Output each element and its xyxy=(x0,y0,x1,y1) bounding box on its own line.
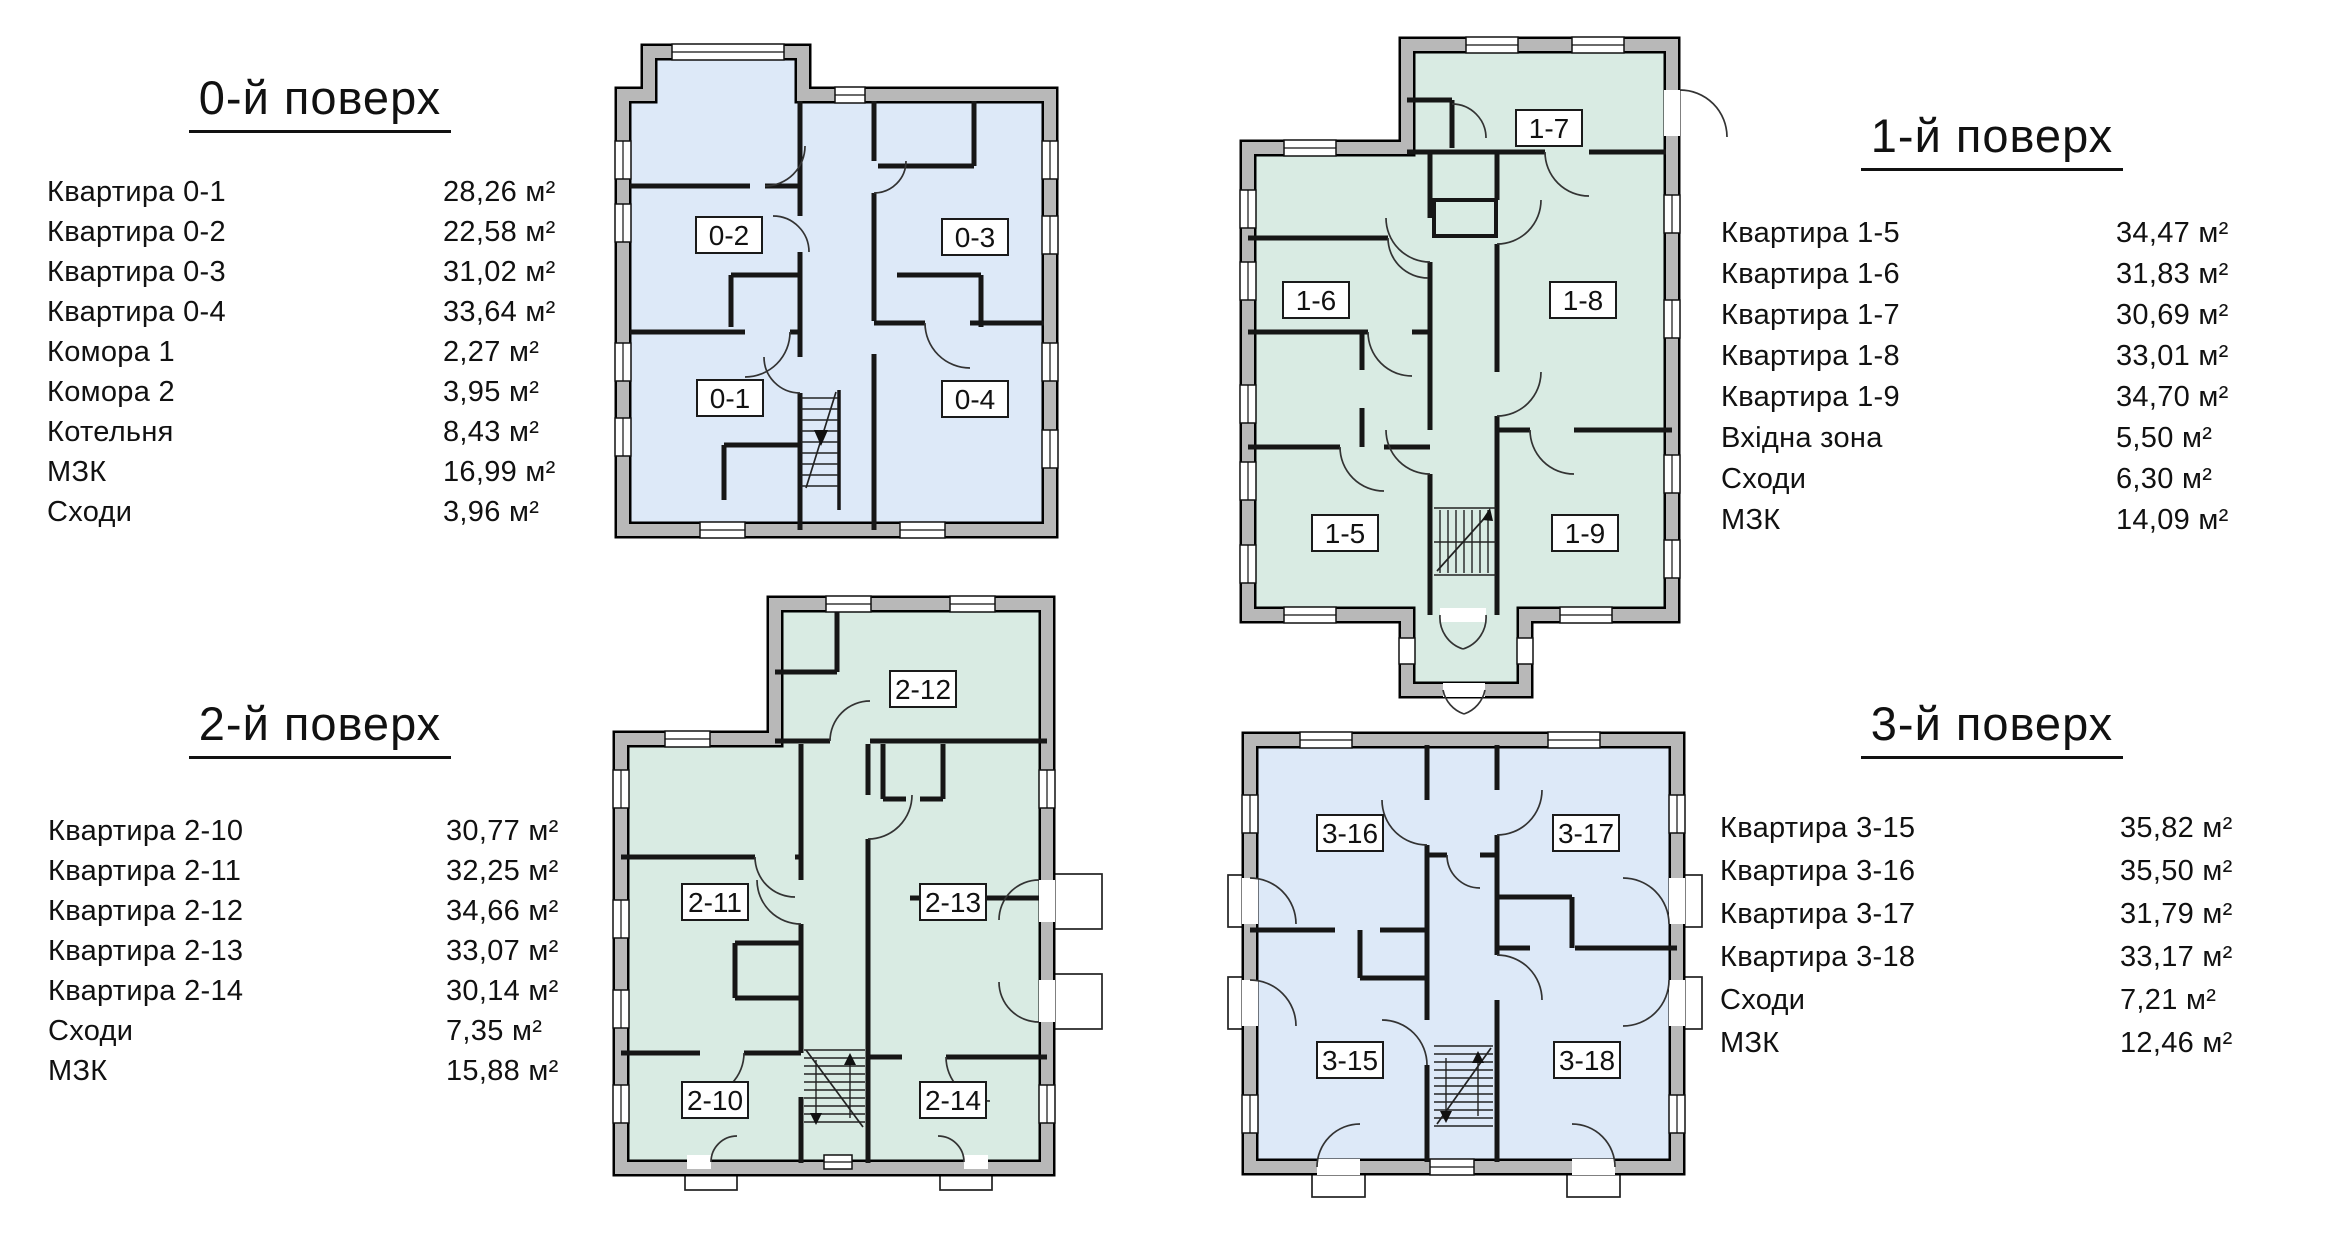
floor-plans-canvas: 0-2 0-3 0-1 0-4 xyxy=(0,0,2335,1254)
building-outline xyxy=(1250,740,1677,1167)
room-label-text: 3-17 xyxy=(1558,818,1614,849)
room-label-text: 3-18 xyxy=(1559,1045,1615,1076)
room-label-text: 2-10 xyxy=(687,1085,743,1116)
room-label-text: 1-5 xyxy=(1325,518,1365,549)
room-label-text: 0-1 xyxy=(710,383,750,414)
room-label-text: 1-8 xyxy=(1563,285,1603,316)
room-label-text: 3-16 xyxy=(1322,818,1378,849)
room-label-text: 2-13 xyxy=(925,887,981,918)
floor-plan-sheet: 0-й поверх Квартира 0-128,26 м² Квартира… xyxy=(0,0,2335,1254)
building-outline xyxy=(623,52,1050,530)
room-label-text: 2-12 xyxy=(895,674,951,705)
room-label-text: 3-15 xyxy=(1322,1045,1378,1076)
room-label-text: 0-3 xyxy=(955,222,995,253)
floor-0-plan: 0-2 0-3 0-1 0-4 xyxy=(615,44,1058,538)
room-label-text: 1-7 xyxy=(1529,113,1569,144)
room-label-text: 1-9 xyxy=(1565,518,1605,549)
floor-2-plan: 2-12 2-11 2-13 2-10 2-14 xyxy=(613,596,1102,1190)
floor-3-plan: 3-16 3-17 3-15 3-18 xyxy=(1228,732,1702,1197)
room-label-text: 0-4 xyxy=(955,384,995,415)
room-label-text: 2-14 xyxy=(925,1085,981,1116)
room-label-text: 1-6 xyxy=(1296,285,1336,316)
floor-1-plan: 1-7 1-6 1-8 1-5 1-9 xyxy=(1240,37,1727,714)
room-label-text: 2-11 xyxy=(688,887,742,918)
room-label-text: 0-2 xyxy=(709,220,749,251)
